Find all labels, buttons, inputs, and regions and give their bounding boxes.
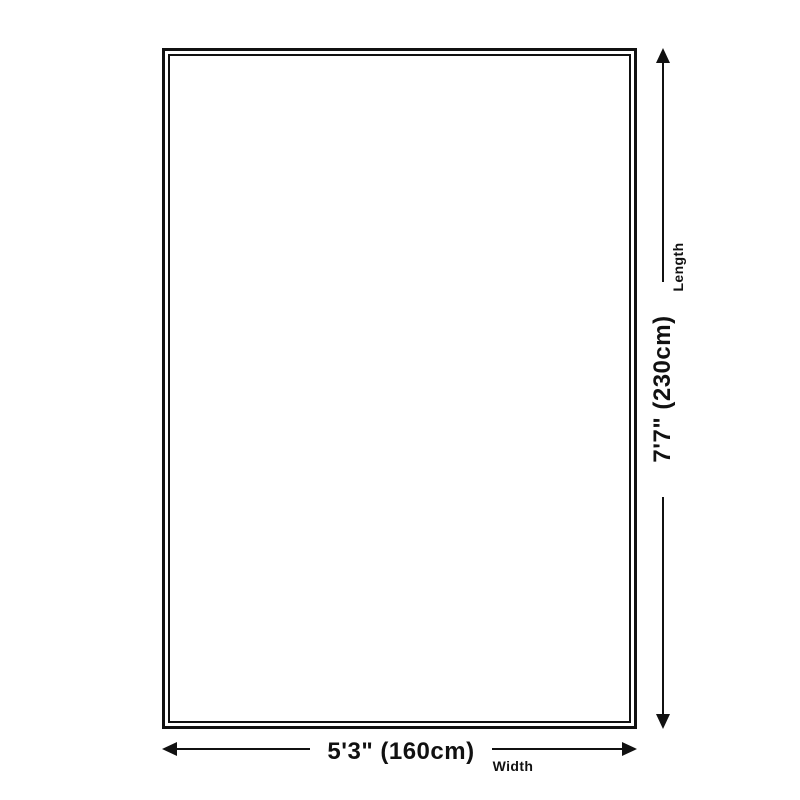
width-arrow-line-left xyxy=(176,748,310,750)
arrow-left-icon xyxy=(162,742,177,756)
rug-outline xyxy=(162,48,637,729)
length-arrow-line-top xyxy=(662,61,664,282)
width-label: Width xyxy=(493,759,534,773)
length-arrow-line-bottom xyxy=(662,497,664,715)
rug-size-diagram: Length 7'7" (230cm) 5'3" (160cm) Width xyxy=(0,0,800,800)
rug-inner-border xyxy=(168,54,631,723)
width-value: 5'3" (160cm) xyxy=(327,740,474,764)
length-value: 7'7" (230cm) xyxy=(651,315,675,462)
arrow-right-icon xyxy=(622,742,637,756)
arrow-down-icon xyxy=(656,714,670,729)
length-label: Length xyxy=(671,242,685,291)
width-arrow-line-right xyxy=(492,748,623,750)
